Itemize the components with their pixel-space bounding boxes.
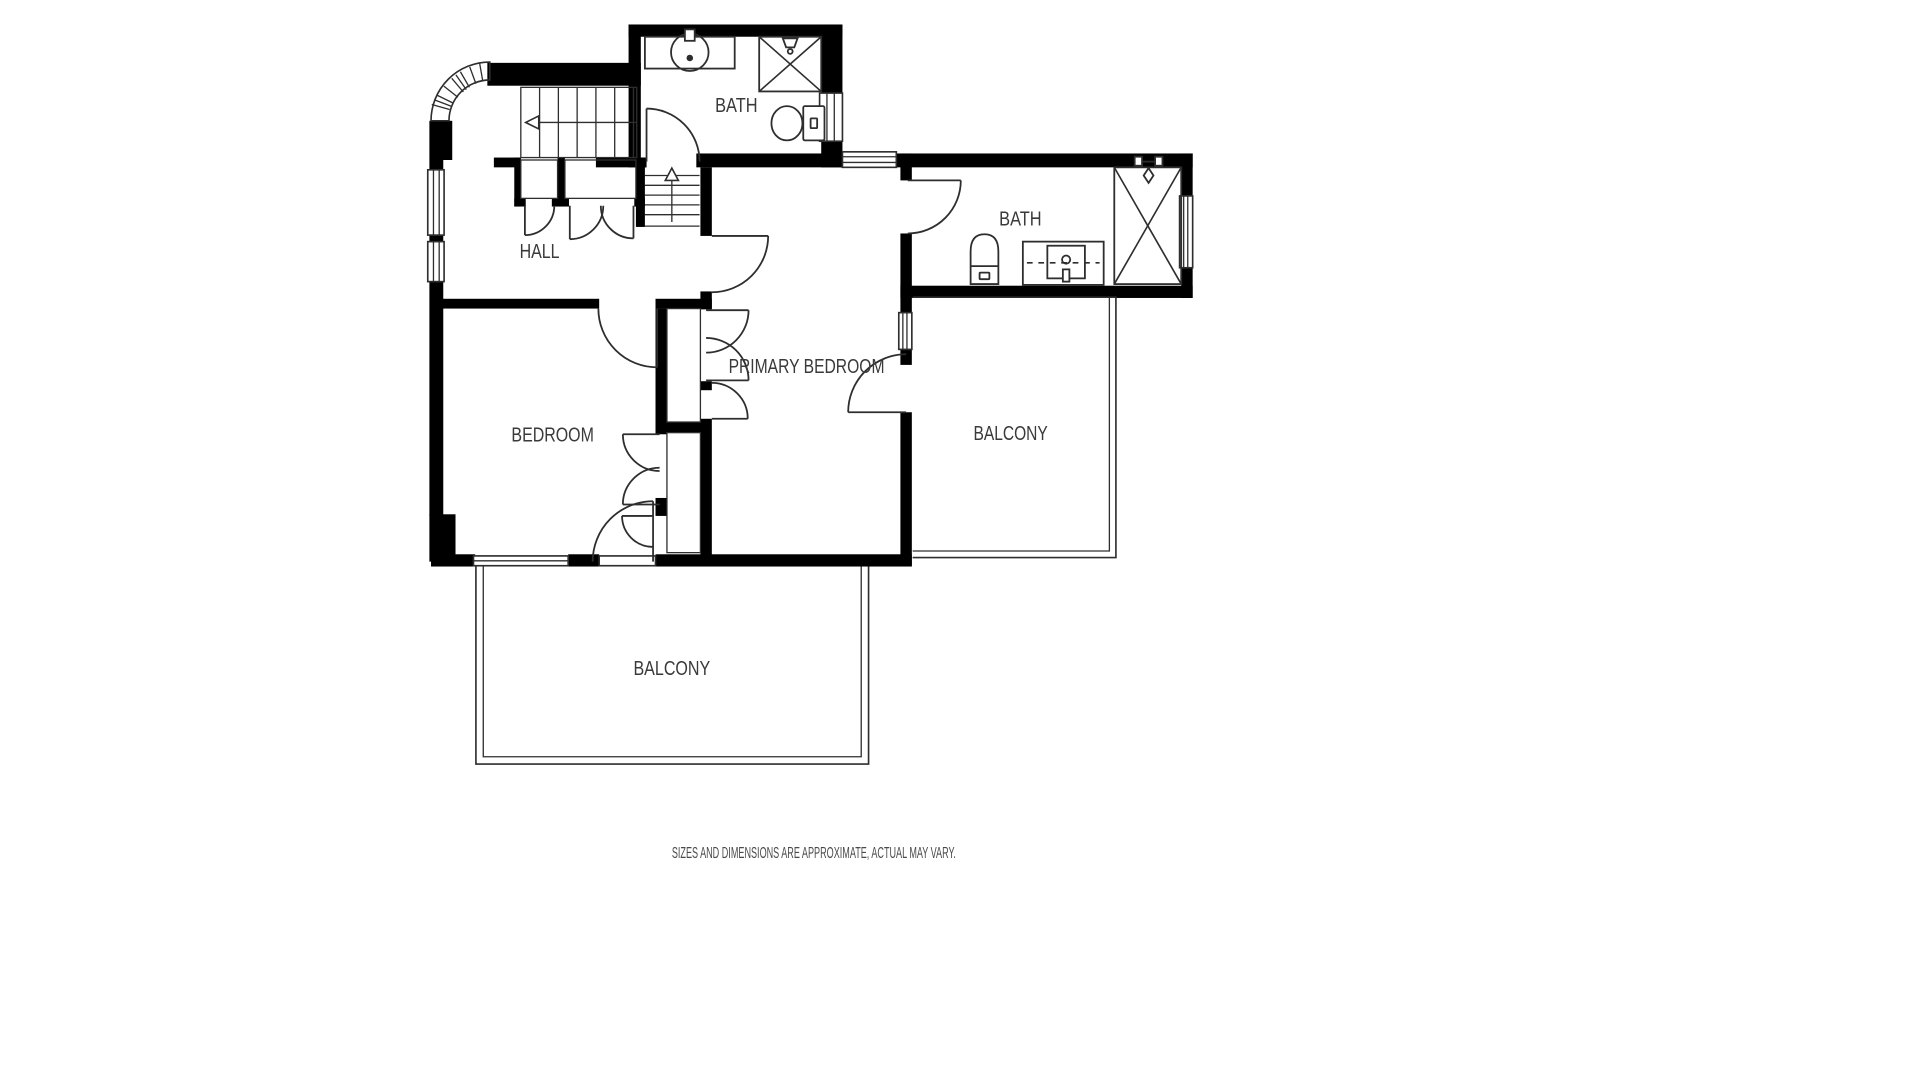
curved-wall-ticks bbox=[432, 63, 483, 110]
stairs-direction-arrow bbox=[665, 168, 678, 180]
staircase-lower-flight bbox=[645, 168, 700, 226]
wall-segment bbox=[429, 121, 452, 160]
understair-closet bbox=[521, 160, 558, 198]
toilet-symbol bbox=[771, 106, 824, 140]
stairs-direction-arrow bbox=[526, 116, 539, 129]
wall-segment bbox=[636, 158, 645, 227]
closets bbox=[521, 160, 701, 553]
doors bbox=[525, 109, 961, 562]
disclaimer-text: SIZES AND DIMENSIONS ARE APPROXIMATE, AC… bbox=[672, 845, 956, 862]
wall-segment bbox=[429, 514, 455, 561]
room-label-balcony-bottom: BALCONY bbox=[633, 658, 710, 680]
interior-walls bbox=[431, 158, 712, 566]
wall-segment bbox=[429, 160, 443, 170]
room-label-balcony-side: BALCONY bbox=[973, 423, 1048, 445]
window-primary-balcony bbox=[899, 313, 912, 350]
wall-segment bbox=[821, 24, 842, 93]
window-primary-north bbox=[842, 152, 896, 168]
wall-segment bbox=[900, 233, 911, 312]
wall-segment bbox=[552, 198, 569, 206]
room-label-bath-ensuite: BATH bbox=[999, 208, 1041, 230]
door-bedroom-entrance bbox=[598, 309, 657, 368]
wall-segment bbox=[900, 349, 911, 365]
door-bedroom-balcony-french bbox=[593, 501, 653, 561]
room-labels: BATH BATH HALL PRIMARY BEDROOM BEDROOM B… bbox=[511, 95, 1048, 680]
window-hall-west-upper bbox=[428, 170, 444, 235]
bath-top-fixtures bbox=[645, 29, 825, 140]
wall-segment bbox=[700, 291, 711, 309]
room-label-primary-bedroom: PRIMARY BEDROOM bbox=[729, 356, 885, 378]
wall-segment bbox=[431, 299, 599, 309]
wall-segment bbox=[900, 286, 1192, 298]
shower-symbol bbox=[1114, 157, 1181, 284]
wall-segment bbox=[700, 167, 711, 236]
floor-plan: BATH BATH HALL PRIMARY BEDROOM BEDROOM B… bbox=[0, 0, 1920, 1080]
wall-segment bbox=[629, 24, 641, 167]
wall-segment bbox=[656, 422, 707, 433]
door-primary-entrance bbox=[712, 236, 768, 292]
room-label-hall: HALL bbox=[520, 241, 560, 263]
balcony-door-threshold bbox=[599, 556, 655, 566]
wardrobe-cavity bbox=[667, 309, 700, 422]
floor-plan-page: BATH BATH HALL PRIMARY BEDROOM BEDROOM B… bbox=[0, 0, 1920, 1080]
door-bath-ensuite bbox=[908, 180, 961, 233]
wall-segment bbox=[700, 381, 711, 390]
door-understair-closet-single bbox=[525, 206, 554, 235]
wall-segment bbox=[1181, 153, 1192, 195]
wall-segment bbox=[896, 153, 1192, 167]
window-hall-west-lower bbox=[428, 242, 444, 282]
wall-segment bbox=[487, 63, 640, 86]
room-label-bedroom: BEDROOM bbox=[511, 425, 593, 447]
curved-wall bbox=[431, 62, 490, 121]
room-label-bath-top: BATH bbox=[715, 95, 757, 117]
wall-segment bbox=[700, 419, 711, 566]
door-primary-closet-single bbox=[712, 383, 748, 419]
wall-segment bbox=[568, 554, 599, 566]
toilet-symbol bbox=[971, 234, 999, 284]
staircase-main bbox=[521, 87, 637, 157]
door-bedroom-closet-double bbox=[623, 434, 660, 504]
wall-segment bbox=[656, 498, 667, 516]
wall-segment bbox=[634, 198, 645, 206]
wall-segment bbox=[900, 412, 911, 565]
wall-segment bbox=[429, 282, 443, 516]
wall-segment bbox=[656, 554, 912, 566]
vanity-sink-symbol bbox=[1023, 242, 1104, 285]
wall-segment bbox=[696, 153, 843, 167]
wall-segment bbox=[629, 24, 843, 36]
wall-segment bbox=[900, 153, 911, 180]
wall-segment bbox=[514, 198, 525, 206]
window-bedroom-south bbox=[473, 556, 568, 566]
door-understair-closet-double bbox=[570, 206, 634, 239]
wall-segment bbox=[429, 235, 443, 242]
wardrobe-cavity bbox=[667, 433, 700, 553]
door-bath-top bbox=[647, 109, 700, 162]
shower-symbol bbox=[759, 37, 821, 92]
